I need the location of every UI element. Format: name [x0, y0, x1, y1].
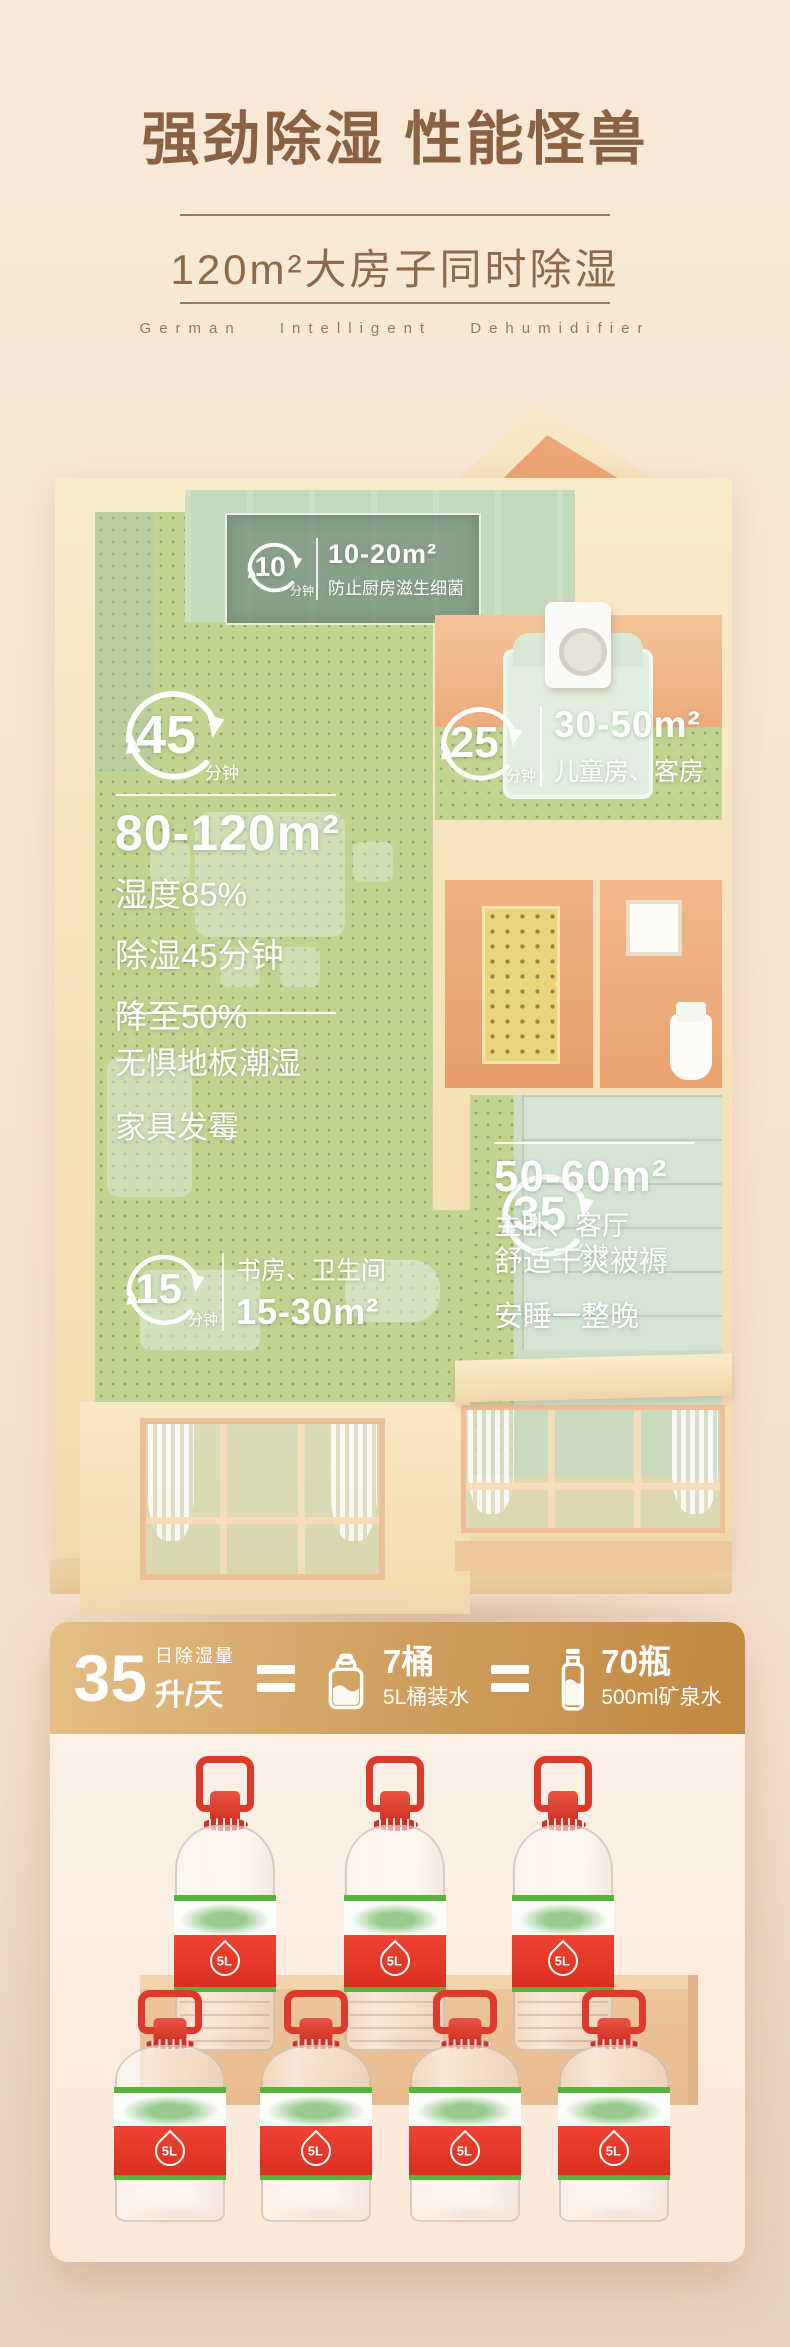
buckets-desc: 5L桶装水: [383, 1681, 469, 1711]
callout-study: 15 分钟 书房、卫生间 15-30m²: [118, 1246, 386, 1338]
left-facade: [80, 1402, 470, 1614]
area-range: 10-20m²: [328, 539, 464, 570]
water-bottle-5l: 5L: [559, 1990, 669, 2222]
tagline: German Intelligent Dehumidifier: [0, 320, 790, 337]
callout-divider: [222, 1253, 224, 1331]
page-title: 强劲除湿 性能怪兽: [0, 92, 790, 176]
bottle-cap: [598, 2018, 631, 2041]
capacity-banner: 35 日除湿量 升/天 7桶 5L桶装水: [50, 1622, 745, 1734]
daily-capacity-group: 35 日除湿量 升/天: [74, 1642, 235, 1714]
area-range: 50-60m²: [494, 1152, 667, 1202]
note-line: 家具发霉: [115, 1102, 301, 1147]
droplet-5l-icon: 5L: [149, 2129, 191, 2171]
minutes-value: 45: [115, 680, 217, 789]
bottles-group: 70瓶 500ml矿泉水: [551, 1642, 721, 1714]
window-mullion: [548, 1410, 555, 1528]
minutes-unit: 分钟: [290, 582, 314, 599]
callout-divider: [540, 706, 542, 786]
toilet: [670, 1014, 712, 1080]
water-bottle-5l: 5L: [115, 1990, 225, 2222]
note-line: 安睡一整晚: [494, 1293, 668, 1335]
chair: [353, 842, 393, 882]
right-balcony: [455, 1357, 732, 1571]
bottle-cap: [548, 1791, 578, 1821]
bottles-desc: 500ml矿泉水: [601, 1681, 721, 1711]
bottle-label: 5L: [409, 2087, 521, 2180]
buckets-count: 7桶: [383, 1645, 469, 1680]
bottle-label: 5L: [260, 2087, 372, 2180]
benefit-notes: 无惧地板潮湿 家具发霉: [115, 1038, 301, 1147]
page-subtitle: 120m²大房子同时除湿: [0, 236, 790, 297]
bottle-scene: 5L 5L 5L 5L 5L: [50, 1734, 745, 2262]
promo-page: 强劲除湿 性能怪兽 120m²大房子同时除湿 German Intelligen…: [0, 0, 790, 2347]
area-range: 30-50m²: [554, 704, 704, 746]
droplet-5l-icon: 5L: [374, 1940, 416, 1982]
timer-icon: 45 分钟: [115, 680, 231, 796]
window-mullion: [298, 1424, 305, 1574]
mirror: [626, 900, 682, 956]
bottles-count: 70瓶: [601, 1645, 721, 1680]
balcony-base: [455, 1541, 732, 1571]
bottle-cap: [380, 1791, 410, 1821]
water-bottle-5l: 5L: [410, 1990, 520, 2222]
bottle-cap: [210, 1791, 240, 1821]
water-bottle-5l: 5L: [261, 1990, 371, 2222]
chair: [280, 947, 320, 987]
callout-kitchen: 10 分钟 10-20m² 防止厨房滋生细菌: [242, 526, 472, 612]
bottle-label: 5L: [114, 2087, 226, 2180]
droplet-5l-icon: 5L: [593, 2129, 635, 2171]
divider-bottom: [180, 302, 610, 304]
timer-icon: 25 分钟: [432, 698, 528, 794]
washing-machine: [545, 602, 611, 688]
callout-divider: [494, 1142, 694, 1144]
curtain: [672, 1410, 718, 1514]
window-mullion: [146, 1517, 379, 1524]
timer-icon: 10 分钟: [242, 537, 306, 601]
capacity-panel: 35 日除湿量 升/天 7桶 5L桶装水: [50, 1622, 745, 2262]
equals-icon: [491, 1665, 529, 1692]
minutes-unit: 分钟: [188, 1309, 218, 1330]
bottle-label: 5L: [512, 1895, 614, 1992]
bottle-cap: [300, 2018, 333, 2041]
bottle-label: 5L: [174, 1895, 276, 1992]
rooms-label: 书房、卫生间: [236, 1251, 386, 1287]
bottle-label: 5L: [344, 1895, 446, 1992]
capacity-unit: 升/天: [155, 1670, 235, 1714]
capacity-label: 日除湿量: [155, 1642, 235, 1668]
buckets-group: 7桶 5L桶装水: [317, 1645, 469, 1712]
equals-icon: [257, 1665, 295, 1692]
capacity-value: 35: [74, 1645, 147, 1711]
callout-children: 25 分钟 30-50m² 儿童房、客房: [432, 698, 704, 794]
corridor-door: [482, 906, 560, 1064]
curtain: [468, 1410, 514, 1514]
minutes-value: 25: [432, 698, 516, 788]
minutes-value: 15: [118, 1246, 199, 1332]
callout-divider: [116, 1012, 336, 1014]
stat-line: 湿度85%: [115, 868, 284, 916]
window-mullion: [634, 1410, 641, 1528]
balcony-awning: [455, 1353, 732, 1402]
floorplan-illustration: 10 分钟 10-20m² 防止厨房滋生细菌 45 分钟 80-120m² 湿度…: [40, 400, 760, 1650]
area-range: 15-30m²: [236, 1291, 386, 1333]
water-jug-icon: [317, 1645, 375, 1711]
droplet-5l-icon: 5L: [204, 1940, 246, 1982]
window-mullion: [466, 1483, 720, 1490]
room-bathroom: [600, 880, 722, 1088]
corridor: [445, 880, 593, 1088]
benefit-notes: 舒适干爽被褥 安睡一整晚: [494, 1238, 668, 1335]
callout-divider: [316, 538, 318, 600]
callout-divider: [116, 794, 336, 796]
bottle-label: 5L: [558, 2087, 670, 2180]
area-desc: 防止厨房滋生细菌: [328, 574, 464, 599]
stat-line: 除湿45分钟: [115, 929, 284, 977]
left-window: [140, 1418, 385, 1580]
bottle-cap: [154, 2018, 187, 2041]
stat-line: 降至50%: [115, 990, 284, 1038]
area-desc: 儿童房、客房: [554, 752, 704, 788]
timer-icon: 15 分钟: [118, 1246, 210, 1338]
window-mullion: [220, 1424, 227, 1574]
water-bottle-icon: [551, 1642, 593, 1714]
balcony-window: [461, 1405, 725, 1533]
bottle-cap: [449, 2018, 482, 2041]
droplet-5l-icon: 5L: [444, 2129, 486, 2171]
droplet-5l-icon: 5L: [542, 1940, 584, 1982]
note-line: 舒适干爽被褥: [494, 1238, 668, 1280]
minutes-unit: 分钟: [205, 759, 239, 784]
minutes-unit: 分钟: [506, 765, 536, 786]
note-line: 无惧地板潮湿: [115, 1038, 301, 1083]
droplet-5l-icon: 5L: [295, 2129, 337, 2171]
area-range: 80-120m²: [115, 804, 340, 862]
window-sill: [120, 1592, 410, 1606]
divider-top: [180, 214, 610, 216]
